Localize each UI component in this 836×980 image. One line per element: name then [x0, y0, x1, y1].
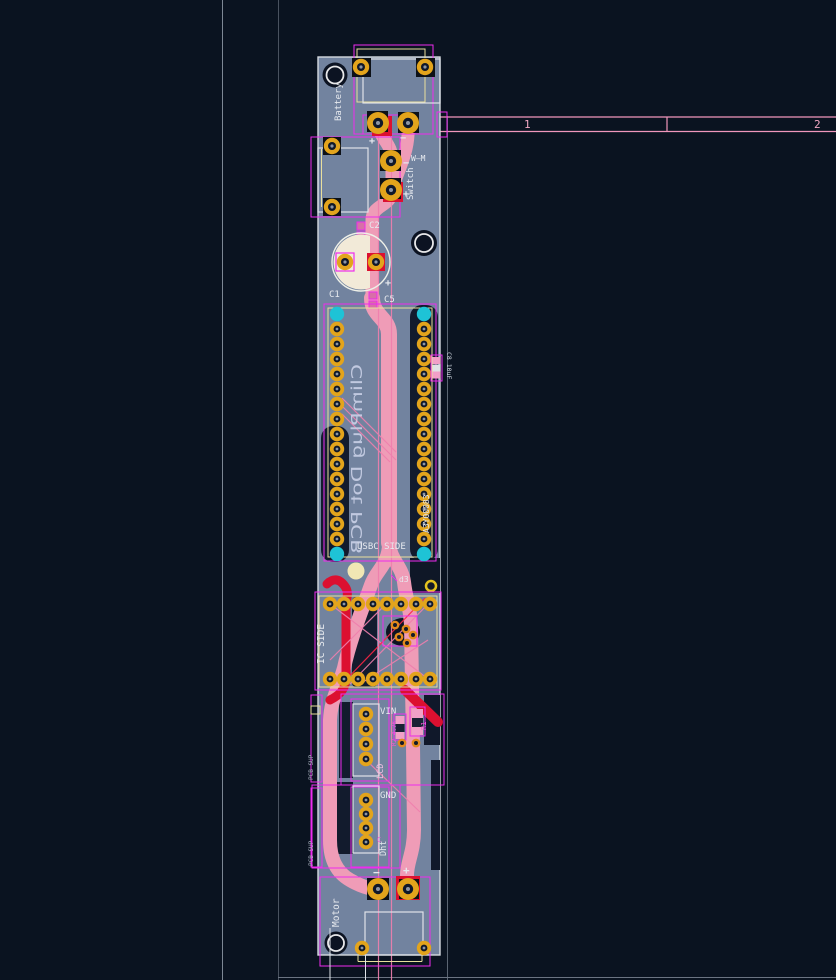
switch-plus-pad[interactable] — [380, 179, 402, 201]
switch-minus-mark: − — [403, 158, 409, 169]
battery-ref-label[interactable]: Battery — [334, 82, 344, 121]
motor-plus-pad[interactable] — [397, 878, 419, 900]
c8-ref-label[interactable]: C8 10uF — [445, 352, 453, 379]
switch-pad[interactable] — [324, 138, 340, 154]
header-left-pads[interactable] — [330, 307, 344, 561]
battery-pad[interactable] — [417, 59, 433, 75]
d3-ref-label[interactable]: d3 — [399, 575, 409, 584]
lcd-pad[interactable] — [359, 722, 373, 736]
dht-pad[interactable] — [359, 835, 373, 849]
c1-plus-mark: + — [385, 278, 391, 289]
via[interactable] — [398, 739, 407, 748]
r1-ref-label[interactable]: R1 — [420, 722, 428, 730]
switch-value-label[interactable]: W—M — [411, 154, 426, 163]
battery-pad[interactable] — [353, 59, 369, 75]
battery-plus-mark: + — [369, 136, 375, 147]
gnd-label[interactable]: GND — [380, 791, 396, 801]
switch-minus-pad[interactable] — [380, 150, 402, 172]
lcd-pad[interactable] — [359, 752, 373, 766]
via[interactable] — [412, 739, 421, 748]
motor-ref-label[interactable]: Motor — [331, 898, 342, 927]
switch-pad[interactable] — [324, 199, 340, 215]
c1-pad[interactable] — [368, 254, 384, 270]
ruler-pin2-label[interactable]: 2 — [814, 118, 821, 131]
cream-pad[interactable] — [348, 563, 365, 580]
motor-minus-pad[interactable] — [367, 878, 389, 900]
c1-ref-label[interactable]: C1 — [329, 290, 340, 300]
motor-minus-mark: − — [373, 866, 380, 879]
dht-pad[interactable] — [359, 793, 373, 807]
r2-ref-label[interactable]: R2 4.7K — [391, 720, 398, 746]
yellow-via[interactable] — [426, 581, 436, 591]
battery-minus-pad[interactable] — [397, 112, 419, 134]
c2-ref-label[interactable]: C2 — [369, 221, 380, 231]
pcb-canvas: 1 2 — [0, 0, 836, 980]
motor-plus-mark: + — [403, 864, 410, 877]
ic-side-label[interactable]: IC SIDE — [316, 624, 327, 664]
lcd-ref-label[interactable]: LCD — [376, 764, 386, 779]
lcd-pad[interactable] — [359, 737, 373, 751]
ruler-pin1-label[interactable]: 1 — [524, 118, 531, 131]
motor-pad[interactable] — [355, 941, 369, 955]
battery-plus-pad[interactable] — [367, 112, 389, 134]
switch-ref-label[interactable]: Switch — [406, 167, 416, 200]
dht-ref-label[interactable]: Dht — [379, 841, 389, 856]
lcd-pad[interactable] — [359, 707, 373, 721]
serial-label[interactable]: A3Y00083 — [422, 494, 431, 533]
battery-minus-mark: − — [400, 133, 406, 144]
sup-top-label[interactable]: PCB SUP — [308, 754, 315, 780]
motor-pad[interactable] — [417, 941, 431, 955]
board-back-title[interactable]: ClimPlug Dot PCB — [348, 364, 366, 554]
dht-pad[interactable] — [359, 807, 373, 821]
sup-bottom-label[interactable]: PCB SUP — [308, 840, 315, 866]
usbc-side-label[interactable]: USBC SIDE — [357, 542, 406, 552]
dht-pad[interactable] — [359, 821, 373, 835]
c1-pad[interactable] — [337, 254, 353, 270]
